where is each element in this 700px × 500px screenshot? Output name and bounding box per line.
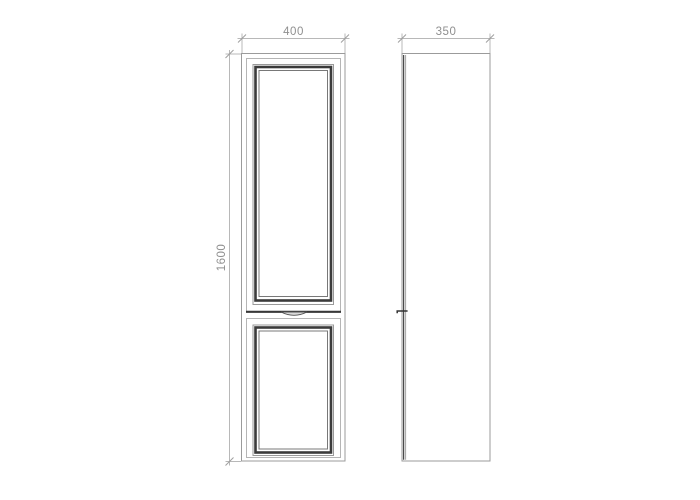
drawing-canvas: 400 350 1600: [0, 0, 700, 500]
cabinet-dimension-drawing: 400 350 1600: [0, 0, 700, 500]
depth-dim-label: 350: [436, 26, 457, 38]
front-upper-door: [246, 59, 341, 316]
upper-door-edge: [247, 59, 341, 313]
dimension-depth: 350: [398, 26, 495, 53]
front-view: [242, 54, 346, 462]
front-lower-door: [247, 319, 341, 458]
dimension-width: 400: [238, 26, 350, 53]
lower-door-edge: [247, 319, 341, 458]
height-dim-label: 1600: [216, 244, 228, 272]
side-view: [397, 54, 490, 462]
width-dim-label: 400: [283, 26, 304, 38]
side-outline: [402, 54, 490, 462]
dimension-height: 1600: [216, 50, 241, 466]
